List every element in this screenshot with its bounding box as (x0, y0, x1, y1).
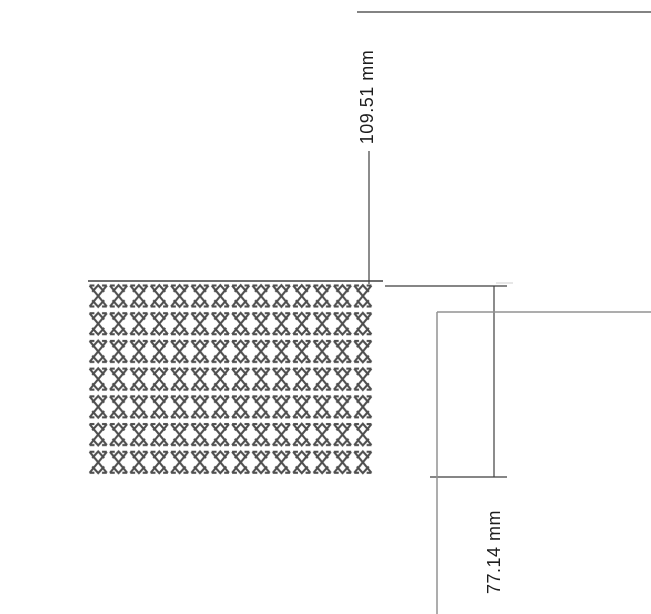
hatch-pattern-region (88, 283, 373, 477)
drawing-canvas: 109.51 mm 77.14 mm (0, 0, 651, 614)
dimension-label-pattern-height: 77.14 mm (483, 482, 505, 614)
drawing-linework (0, 0, 651, 614)
dimension-label-vertical-offset: 109.51 mm (356, 27, 378, 167)
